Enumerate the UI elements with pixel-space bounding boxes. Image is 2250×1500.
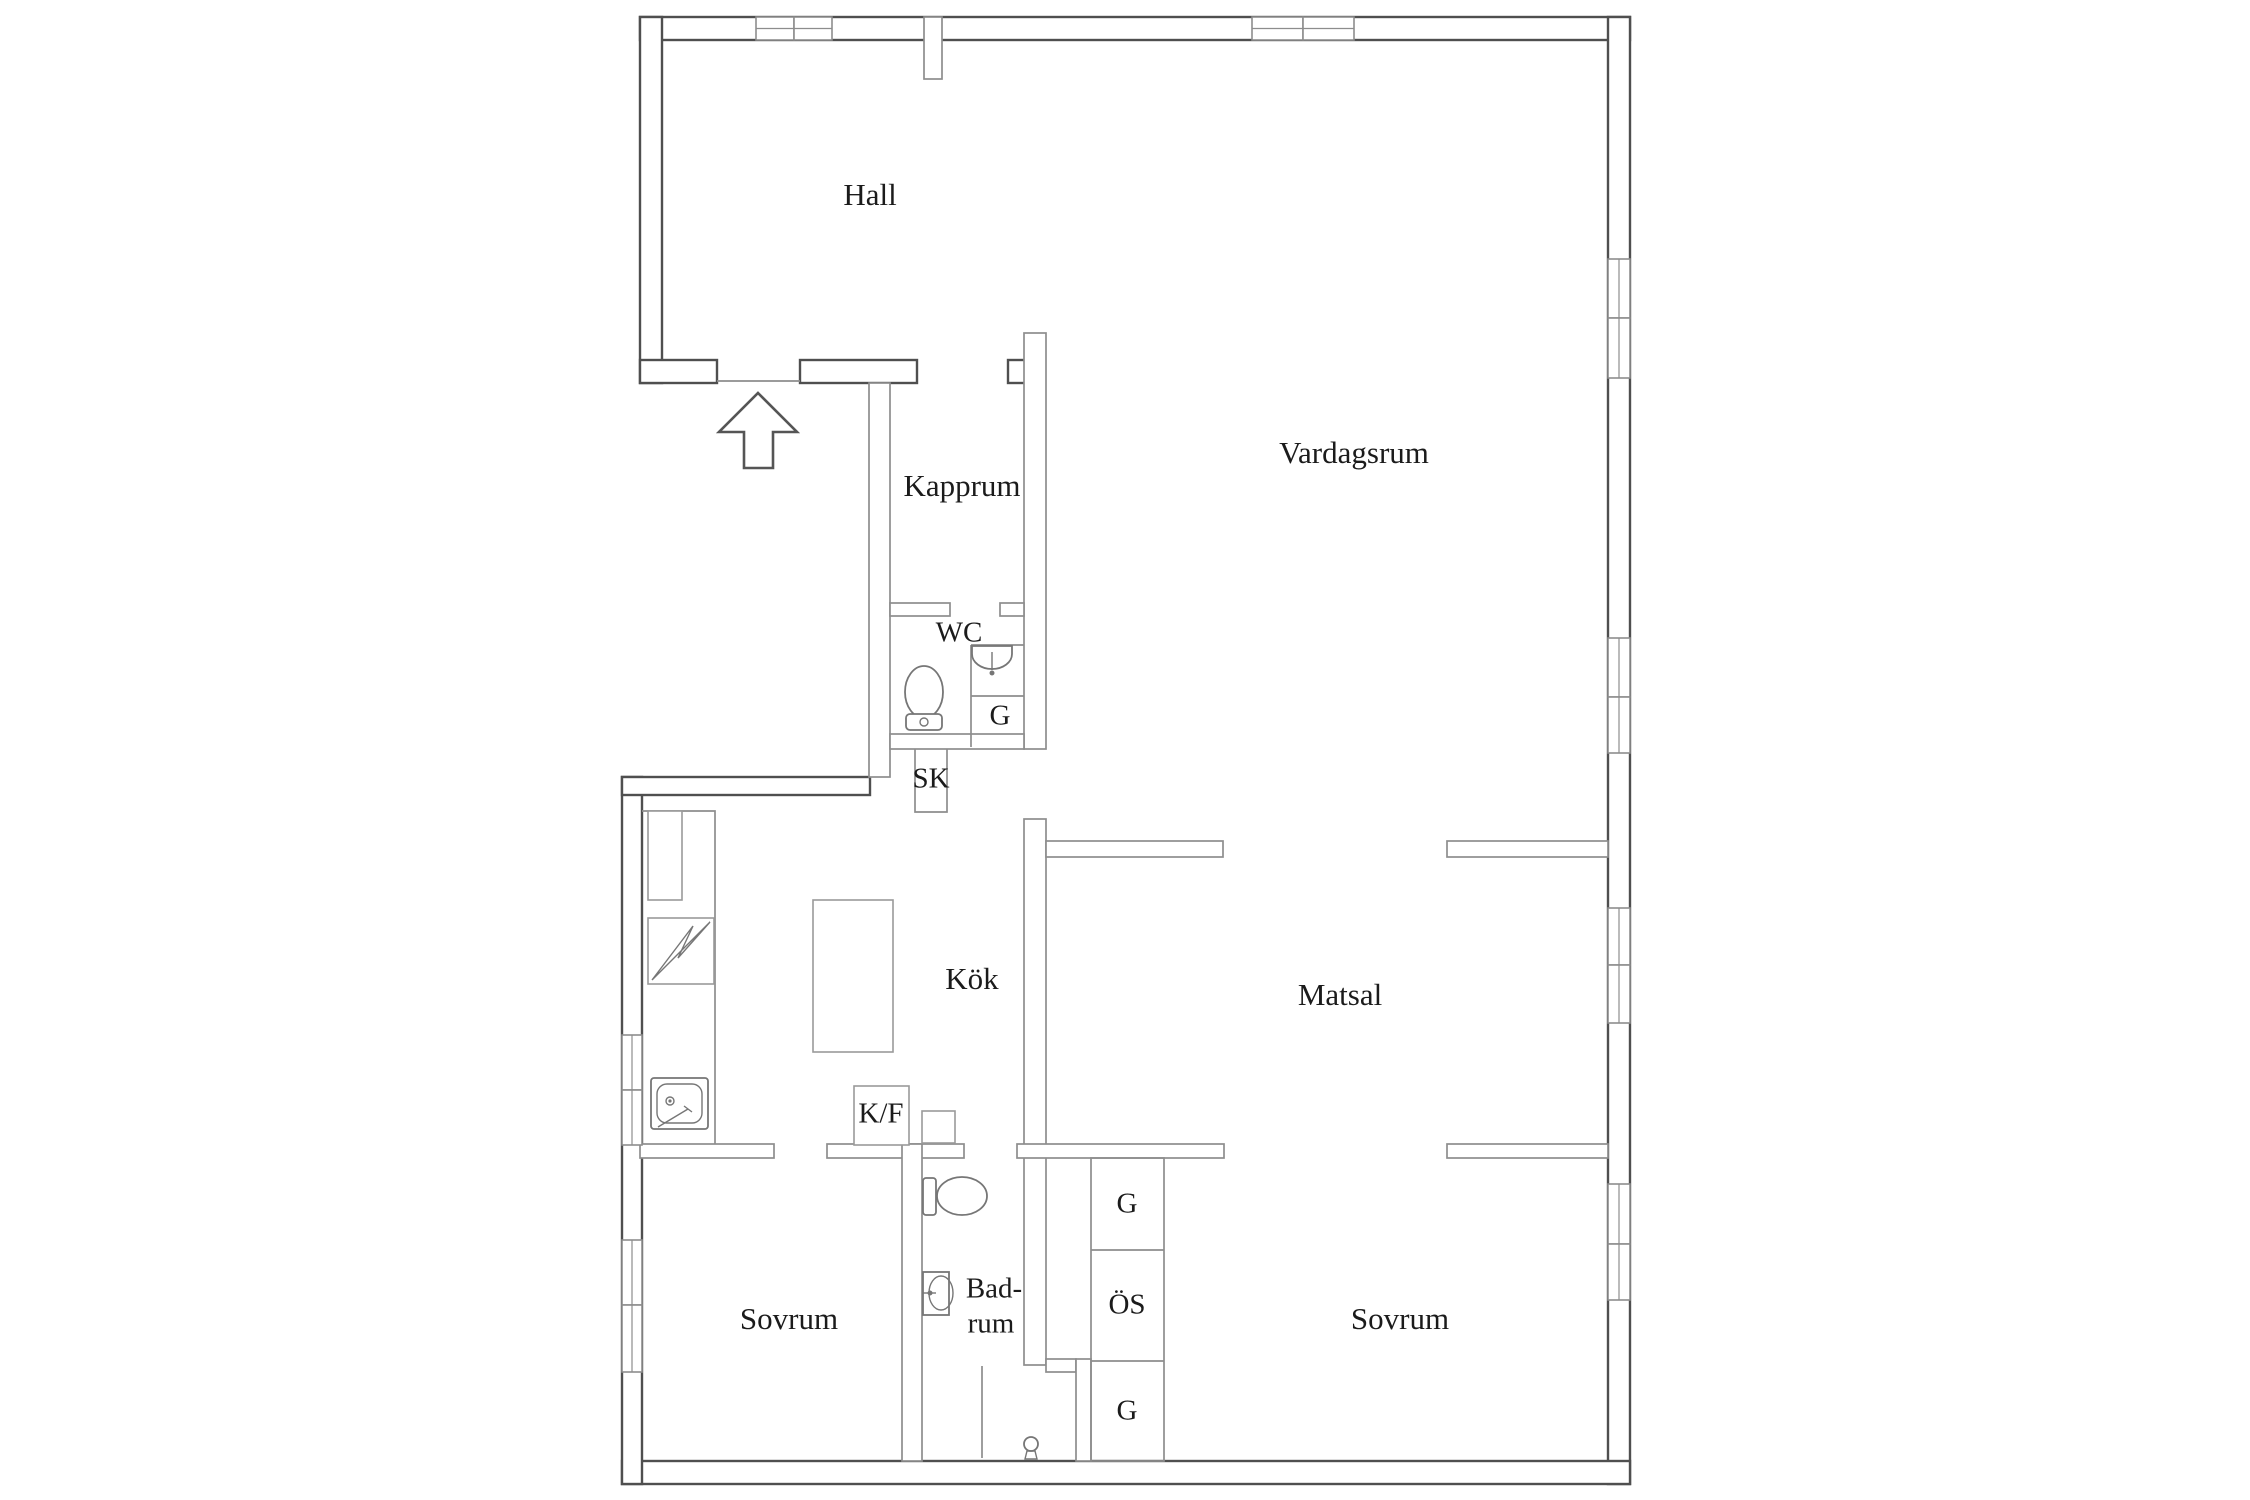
- toilet-icon: [923, 1177, 987, 1215]
- room-label-badrum-1: Bad-: [966, 1273, 1022, 1305]
- wall: [1076, 1359, 1091, 1461]
- closet-label-os: ÖS: [1108, 1289, 1145, 1321]
- window: [622, 1035, 642, 1145]
- window: [1252, 17, 1354, 40]
- window: [622, 1240, 642, 1372]
- window: [1608, 1184, 1630, 1300]
- wall: [1447, 1144, 1608, 1158]
- room-label-vardagsrum: Vardagsrum: [1279, 435, 1429, 470]
- wall: [869, 383, 890, 777]
- room-label-matsal: Matsal: [1298, 977, 1382, 1012]
- furniture: [648, 811, 955, 1145]
- closet-label-g-bottom: G: [1117, 1395, 1138, 1427]
- room-label-sk: SK: [912, 763, 949, 795]
- room-label-kf: K/F: [858, 1098, 903, 1130]
- wall: [1046, 1359, 1076, 1372]
- wall: [1046, 841, 1223, 857]
- room-label-hall: Hall: [843, 177, 896, 212]
- wall: [1447, 841, 1608, 857]
- shower-head-icon: [1024, 1437, 1038, 1459]
- stove-icon: [648, 918, 714, 984]
- wall: [1024, 333, 1046, 749]
- room-label-sovrum-left: Sovrum: [740, 1301, 838, 1336]
- wall: [622, 1461, 1630, 1484]
- floor-plan-page: Hall Kapprum WC G SK Vardagsrum Kök Mats…: [0, 0, 2250, 1500]
- wall: [640, 360, 717, 383]
- room-label-kok: Kök: [945, 961, 999, 996]
- wall: [640, 17, 662, 383]
- tall-cabinet: [648, 811, 682, 900]
- wall: [827, 1144, 964, 1158]
- wall: [800, 360, 917, 383]
- room-label-wc: WC: [936, 617, 983, 649]
- window: [1608, 908, 1630, 1023]
- wall: [1024, 819, 1046, 1365]
- room-label-wc-closet: G: [990, 700, 1011, 732]
- room-label-badrum-2: rum: [968, 1308, 1015, 1340]
- wall: [1000, 603, 1024, 616]
- entrance-arrow-icon: [719, 393, 797, 468]
- wall: [1008, 360, 1025, 383]
- inner-walls: [640, 17, 1608, 1461]
- window: [1608, 259, 1630, 378]
- room-label-kapprum: Kapprum: [903, 468, 1020, 503]
- room-label-sovrum-right: Sovrum: [1351, 1301, 1449, 1336]
- floor-plan-drawing: Hall Kapprum WC G SK Vardagsrum Kök Mats…: [0, 0, 2250, 1500]
- wall: [902, 1144, 922, 1461]
- wall: [640, 1144, 774, 1158]
- wall: [622, 777, 870, 795]
- wall: [890, 734, 1024, 749]
- washbasin-icon: [923, 1272, 953, 1315]
- wall: [890, 603, 950, 616]
- wall: [924, 17, 942, 79]
- kitchen-sink-icon: [651, 1078, 708, 1129]
- washbasin-icon: [972, 646, 1012, 676]
- window: [756, 17, 832, 40]
- window: [1608, 638, 1630, 753]
- windows: [622, 17, 1630, 1372]
- toilet-icon: [905, 666, 943, 730]
- wall: [1017, 1144, 1224, 1158]
- kitchen-island: [813, 900, 893, 1052]
- outer-walls: [622, 17, 1630, 1484]
- closet-label-g-top: G: [1117, 1188, 1138, 1220]
